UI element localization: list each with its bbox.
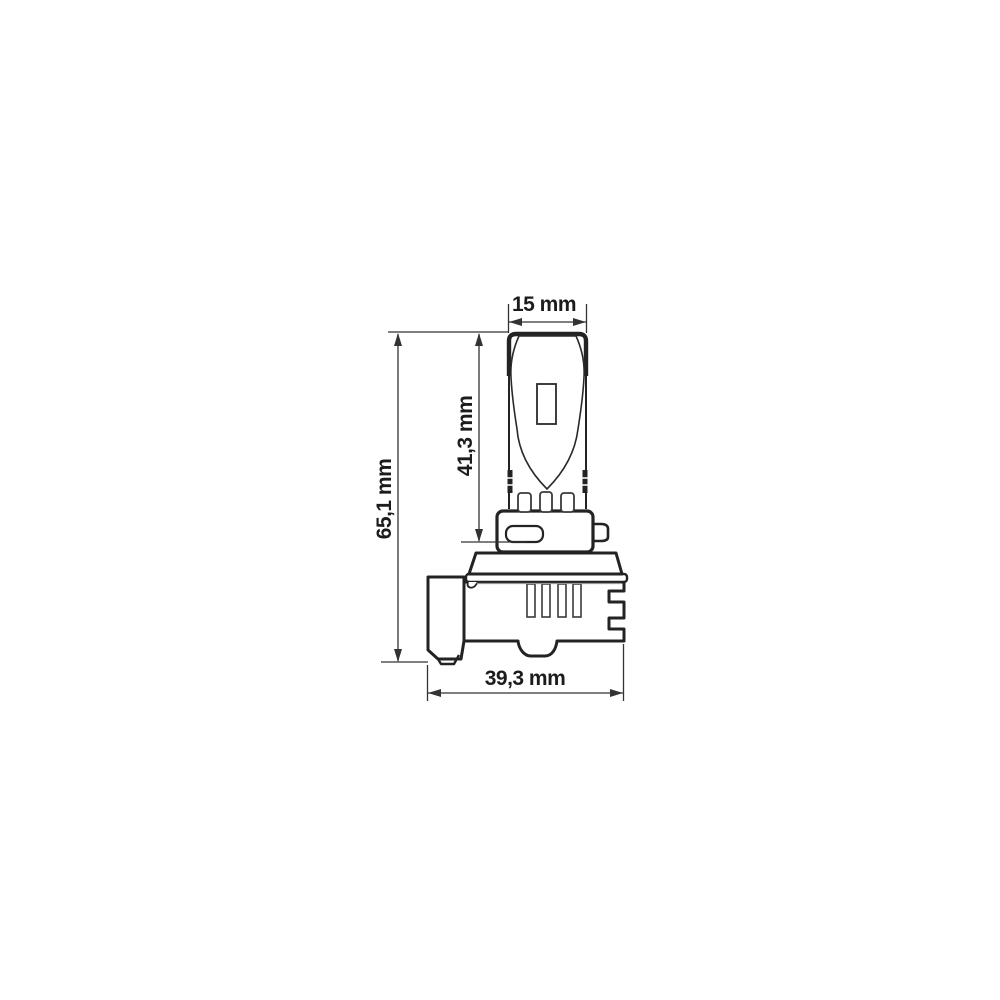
led-chip: [537, 384, 556, 424]
dimension-label-top-width: 15 mm: [512, 293, 576, 317]
dimension-label-total-height: 65,1 mm: [373, 459, 397, 540]
collar-slot: [506, 526, 543, 542]
base-trapezoid: [469, 553, 622, 574]
contact-prongs: [518, 492, 574, 512]
dimension-label-upper-height: 41,3 mm: [454, 396, 478, 477]
dimension-label-bottom-width: 39,3 mm: [485, 667, 566, 691]
connector-block: [428, 577, 464, 664]
technical-drawing-canvas: 15 mm 41,3 mm 65,1 mm 39,3 mm: [0, 0, 1000, 1000]
bulb-technical-drawing: [0, 0, 1000, 1000]
